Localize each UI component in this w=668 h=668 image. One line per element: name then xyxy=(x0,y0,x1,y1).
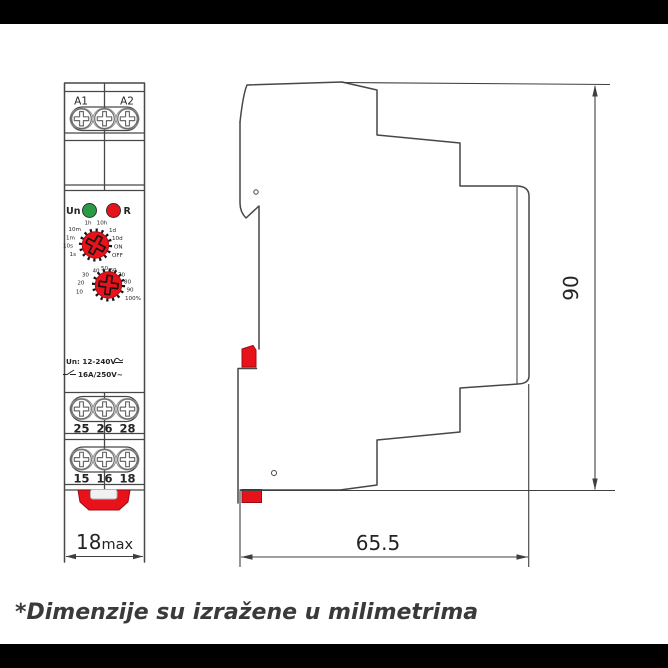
arrow-down-icon xyxy=(592,479,597,491)
top-letterbox-bar xyxy=(0,0,668,24)
svg-text:18max: 18max xyxy=(76,530,133,554)
dial-knob[interactable] xyxy=(82,232,108,258)
dial-scale-label: 10d xyxy=(112,236,123,242)
din-clip-front[interactable] xyxy=(78,490,130,511)
screw-terminal-icon xyxy=(116,399,139,420)
screw-terminal-icon xyxy=(70,399,93,420)
terminal-25-label: 25 xyxy=(73,422,89,436)
din-clip-edge xyxy=(238,369,257,504)
screw-terminal-icon xyxy=(93,449,116,470)
output-terminal-row1: 25 26 28 xyxy=(70,397,139,436)
dial-scale-label: 10m xyxy=(68,227,81,233)
terminal-18-label: 18 xyxy=(119,472,135,486)
terminal-a2-label: A2 xyxy=(120,96,134,108)
hole-icon xyxy=(272,471,277,476)
rating-line2: 16A/250V~ xyxy=(78,370,123,379)
side-view: 90 65.5 xyxy=(238,82,615,567)
dial-scale-label: 10s xyxy=(63,244,73,250)
time-range-dial: 1h 10h 10m 1d 1m 10d 10s ON 1s OFF xyxy=(63,221,123,261)
dial-scale-label: 1d xyxy=(109,228,117,234)
screw-terminal-icon xyxy=(93,399,116,420)
dial-scale-label: 1h xyxy=(84,221,92,227)
din-clip-side-lower[interactable] xyxy=(242,490,262,503)
terminal-26-label: 26 xyxy=(96,422,112,436)
r-led-icon xyxy=(107,204,121,218)
dial-scale-label: 50 xyxy=(101,266,109,272)
dial-scale-label: 1m xyxy=(66,236,75,242)
un-led-icon xyxy=(83,204,97,218)
dial-scale-label: 60 xyxy=(109,268,117,274)
units-note: *Dimenzije su izražene u milimetrima xyxy=(15,600,478,625)
arrow-left-icon xyxy=(241,554,253,559)
ratings-text: Un: 12-240V 16A/250V~ xyxy=(63,357,123,379)
output-terminal-row2: 15 16 18 xyxy=(70,447,139,486)
din-clip-slot xyxy=(91,490,118,500)
screw-terminal-icon xyxy=(70,449,93,470)
bottom-letterbox-bar xyxy=(0,644,668,668)
side-profile-outline xyxy=(240,82,529,490)
dimension-drawing: A1 A2 Un R 1h 10h 10m xyxy=(0,0,668,668)
height-value: 90 xyxy=(559,275,583,300)
din-rail-slot-edge xyxy=(240,122,259,349)
r-led-label: R xyxy=(124,206,132,217)
screw-terminal-icon xyxy=(70,108,93,129)
dial-scale-label: 70 xyxy=(118,273,126,279)
dial-scale-label: 10h xyxy=(97,221,108,227)
screw-terminal-icon xyxy=(116,449,139,470)
dial-scale-label: 40 xyxy=(92,269,100,275)
arrow-right-icon xyxy=(517,554,529,559)
un-led-label: Un xyxy=(66,206,81,217)
dial-scale-label: 10 xyxy=(76,290,84,296)
dial-scale-label: 1s xyxy=(70,252,77,258)
led-indicators: Un R xyxy=(66,204,132,218)
percent-dial: 40 50 60 30 70 20 80 10 90 100% xyxy=(76,266,141,302)
width-suffix: max xyxy=(101,537,133,553)
dial-scale-label: ON xyxy=(114,245,123,251)
dial-scale-label: 20 xyxy=(77,281,85,287)
screw-terminal-icon xyxy=(93,108,116,129)
screw-terminal-icon xyxy=(116,108,139,129)
dial-scale-label: 90 xyxy=(127,288,135,294)
terminal-a1-label: A1 xyxy=(74,96,88,108)
front-view: A1 A2 Un R 1h 10h 10m xyxy=(63,83,145,562)
terminal-28-label: 28 xyxy=(119,422,135,436)
dial-scale-label: 100% xyxy=(125,296,141,302)
width-dimension: 18max xyxy=(66,530,143,559)
depth-dimension: 65.5 xyxy=(240,384,529,567)
arrow-right-icon xyxy=(133,554,143,559)
arrow-up-icon xyxy=(592,85,597,97)
terminal-15-label: 15 xyxy=(73,472,89,486)
height-dimension: 90 xyxy=(240,83,615,491)
terminal-16-label: 16 xyxy=(96,472,112,486)
extension-line xyxy=(342,83,610,85)
width-value: 18 xyxy=(76,530,101,554)
din-clip-side-upper[interactable] xyxy=(242,346,256,368)
acdc-icon xyxy=(115,358,123,362)
dial-scale-label: OFF xyxy=(112,253,123,259)
arrow-left-icon xyxy=(66,554,76,559)
hole-icon xyxy=(254,190,258,194)
rating-line1: Un: 12-240V xyxy=(66,357,116,366)
drawing-canvas: A1 A2 Un R 1h 10h 10m xyxy=(0,0,668,668)
dial-scale-label: 30 xyxy=(82,273,90,279)
depth-value: 65.5 xyxy=(356,531,401,555)
dial-scale-label: 80 xyxy=(124,280,132,286)
